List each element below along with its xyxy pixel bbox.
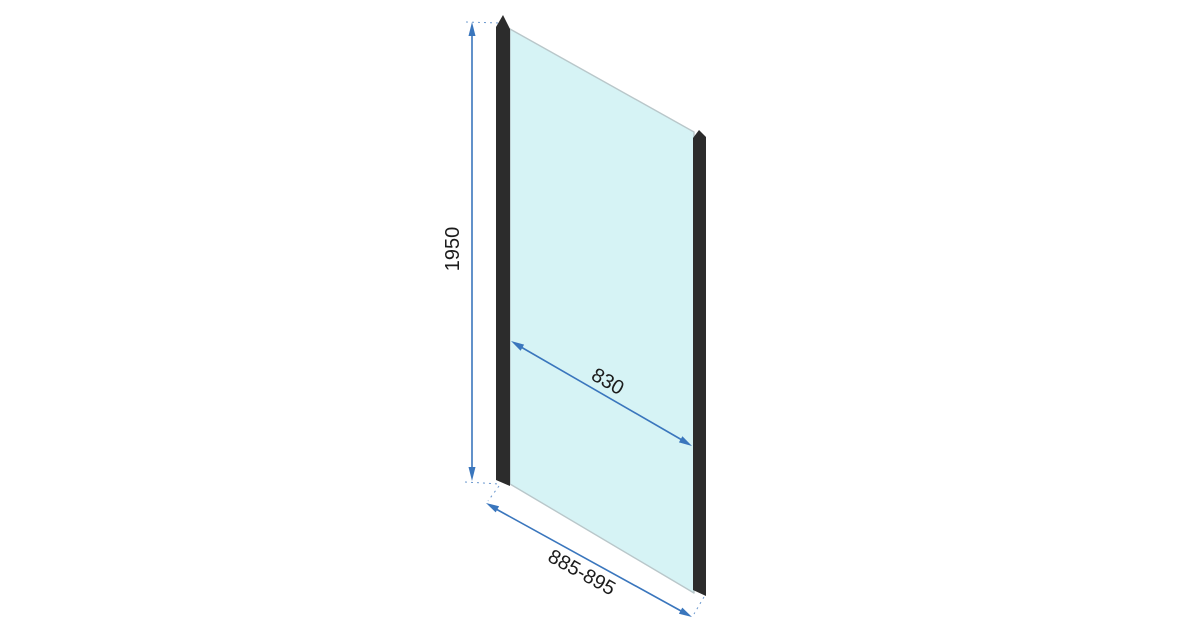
extension-line-bottom-left — [488, 486, 499, 501]
right-wall-profile — [693, 130, 706, 596]
height-dimension-label: 1950 — [442, 227, 464, 272]
extension-line-top — [466, 22, 498, 23]
glass-panel — [510, 29, 694, 593]
arrow-down-right-icon — [679, 608, 692, 617]
height-dimension: 1950 — [442, 22, 500, 484]
overall-width-dimension-label: 885-895 — [544, 545, 619, 600]
extension-line-bottom-right — [694, 597, 704, 614]
diagram-canvas: 1950 830 885-895 — [0, 0, 1200, 630]
shower-panel-technical-diagram: 1950 830 885-895 — [0, 0, 1200, 630]
left-wall-profile — [496, 15, 510, 486]
extension-line-bottom — [465, 482, 500, 484]
arrow-up-icon — [469, 22, 476, 36]
arrow-up-left-icon — [486, 503, 499, 512]
arrow-down-icon — [469, 467, 476, 481]
